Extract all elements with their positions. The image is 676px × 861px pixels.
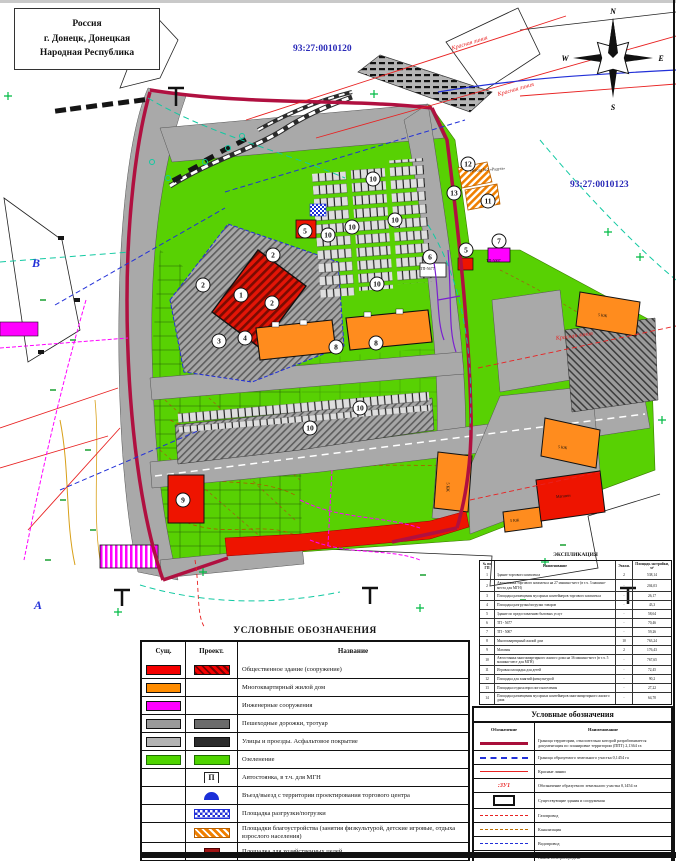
explication-cell-name: Площадка для занятий физкультурой xyxy=(494,675,615,683)
explication-rows: 1Здание торгового комплекса2538,142Автос… xyxy=(480,571,671,703)
explication-cell-name: Площадка отдыха взрослого населения xyxy=(494,684,615,692)
legend-right-symbol xyxy=(474,809,534,822)
explication-cell-area: 176,43 xyxy=(632,646,671,654)
explication-cell-num: 9 xyxy=(480,646,494,654)
legend-right-title: Условные обозначения xyxy=(474,708,671,722)
title-line-2: г. Донецк, Донецкая xyxy=(15,32,159,47)
green-swatch xyxy=(146,755,181,765)
legend-swatch-proj xyxy=(185,715,237,732)
legend-right-name: Граница территории, относительно которой… xyxy=(534,736,671,750)
explication-cell-floors: 2 xyxy=(615,571,632,579)
explication-cell-floors: 2 xyxy=(615,646,632,654)
legend-left-row: Общественное здание (сооружение) xyxy=(142,661,468,678)
legend-right-symbol xyxy=(474,793,534,808)
legend-right-row: :ЗУ1Обозначение образуемого земельного у… xyxy=(474,778,671,792)
green-swatch xyxy=(194,755,230,765)
legend-left-table: Сущ. Проект. Название Общественное здани… xyxy=(140,640,470,861)
legend-left-row: Пешеходные дорожки, тротуар xyxy=(142,714,468,732)
orangehatch-swatch xyxy=(194,828,230,838)
explication-cell-floors: - xyxy=(615,655,632,665)
compass-w: W xyxy=(561,54,569,63)
legend-right-row: Граница образуемого земельного участка 0… xyxy=(474,750,671,764)
explication-cell-area: 72,45 xyxy=(632,666,671,674)
explication-cell-area: 70,46 xyxy=(632,619,671,627)
explication-cell-area: 90,2 xyxy=(632,675,671,683)
compass-e: E xyxy=(657,54,663,63)
explication-cell-floors: - xyxy=(615,580,632,590)
legend-left-panel: УСЛОВНЫЕ ОБОЗНАЧЕНИЯ Сущ. Проект. Назван… xyxy=(140,626,470,861)
legend-right-table: Условные обозначения Обозначение Наимено… xyxy=(472,706,673,861)
gray-swatch xyxy=(146,719,181,729)
map-canvas: N W E S xyxy=(0,0,676,630)
explication-col-area: Площадь застройки, м² xyxy=(632,561,671,571)
legend-swatch-proj xyxy=(185,661,237,678)
legend-right-symbol xyxy=(474,765,534,778)
explication-cell-num: 4 xyxy=(480,601,494,609)
legend-row-name: Автостоянка, в т.ч. для МГН xyxy=(237,769,468,786)
explication-cell-area: 59,26 xyxy=(632,628,671,636)
legend-swatch-exist xyxy=(142,733,185,750)
explication-cell-num: 12 xyxy=(480,675,494,683)
explication-cell-name: Игровая площадка для детей xyxy=(494,666,615,674)
ppt-line-symbol xyxy=(480,742,528,745)
legend-row-name: Общественное здание (сооружение) xyxy=(237,661,468,678)
explication-row: 6ТП - 5677-70,46 xyxy=(480,618,671,627)
legend-swatch-exist xyxy=(142,751,185,768)
legend-left-row: Озеленение xyxy=(142,750,468,768)
legend-left-row: Улицы и проезды. Асфальтовое покрытие xyxy=(142,732,468,750)
frame-right-edge xyxy=(673,0,675,861)
explication-cell-area: 538,14 xyxy=(632,571,671,579)
legend-right-row: Граница территории, относительно которой… xyxy=(474,736,671,750)
explication-cell-num: 13 xyxy=(480,684,494,692)
legend-right-row: Канализация xyxy=(474,822,671,836)
red-swatch xyxy=(146,665,181,675)
legend-right-symbol: :ЗУ1 xyxy=(474,779,534,792)
legend-right-row: Красные линии xyxy=(474,764,671,778)
legend-row-name: Площадки благоустройства (занятия физкул… xyxy=(237,823,468,842)
legend-right-name: Обозначение образуемого земельного участ… xyxy=(534,779,671,792)
legend-right-name: Водопровод xyxy=(534,837,671,850)
explication-cell-area: 763,24 xyxy=(632,637,671,645)
explication-row: 11Игровая площадка для детей-72,45 xyxy=(480,665,671,674)
legend-right-symbol xyxy=(474,751,534,764)
legend-swatch-proj: П xyxy=(185,769,237,786)
compass-n: N xyxy=(609,7,617,16)
engineering-small xyxy=(0,322,38,336)
legend-swatch-exist xyxy=(142,823,185,842)
legend-swatch-proj xyxy=(185,823,237,842)
legend-col-proj: Проект. xyxy=(185,642,237,661)
legend-col-exist: Сущ. xyxy=(142,642,185,661)
explication-cell-name: Площадка размещения мусорных контейнеров… xyxy=(494,592,615,600)
legend-left-row: ПАвтостоянка, в т.ч. для МГН xyxy=(142,768,468,786)
explication-row: 14Площадка размещения мусорных контейнер… xyxy=(480,692,671,703)
magenta-swatch xyxy=(146,701,181,711)
explication-row: 13Площадка отдыха взрослого населения-27… xyxy=(480,683,671,692)
legend-swatch-proj xyxy=(185,751,237,768)
explication-cell-name: Многоквартирный жилой дом xyxy=(494,637,615,645)
legend-swatch-proj xyxy=(185,679,237,696)
legend-right-name: Существующие здания и сооружения xyxy=(534,793,671,808)
explication-cell-floors: - xyxy=(615,666,632,674)
bluecheck-swatch xyxy=(194,809,230,819)
explication-row: 4Площадка разгрузки/погрузки товаров-43,… xyxy=(480,600,671,609)
legend-right-name: Граница образуемого земельного участка 0… xyxy=(534,751,671,764)
explication-title: ЭКСПЛИКАЦИЯ xyxy=(479,552,672,558)
orange-swatch xyxy=(146,683,181,693)
explication-cell-floors: - xyxy=(615,684,632,692)
sewer-symbol xyxy=(480,829,528,830)
explication-cell-num: 3 xyxy=(480,592,494,600)
legend-right-row: Существующие здания и сооружения xyxy=(474,792,671,808)
explication-cell-num: 2 xyxy=(480,580,494,590)
explication-cell-num: 11 xyxy=(480,666,494,674)
loading-area xyxy=(310,204,326,216)
legend-swatch-exist xyxy=(142,787,185,804)
parking-swatch: П xyxy=(204,772,218,783)
playground-b xyxy=(465,184,500,210)
plan-sheet: N W E S Красная линияКрасная линияКрасна… xyxy=(0,0,676,861)
explication-cell-floors: - xyxy=(615,601,632,609)
explication-row: 2Автостоянка торгового комплекса на 27 м… xyxy=(480,579,671,590)
explication-cell-name: Здание торгового комплекса xyxy=(494,571,615,579)
explication-cell-name: ТП - 5677 xyxy=(494,619,615,627)
legend-row-name: Улицы и проезды. Асфальтовое покрытие xyxy=(237,733,468,750)
legend-row-name: Площадка разгрузки/погрузки xyxy=(237,805,468,822)
asphalt-swatch xyxy=(194,737,230,747)
explication-col-name: Наименование xyxy=(494,561,615,571)
title-line-3: Народная Республика xyxy=(15,46,159,61)
legend-left-title: УСЛОВНЫЕ ОБОЗНАЧЕНИЯ xyxy=(140,626,470,636)
explication-row: 3Площадка размещения мусорных контейнеро… xyxy=(480,591,671,600)
darkgray-swatch xyxy=(194,719,230,729)
legend-swatch-proj xyxy=(185,805,237,822)
explication-col-floors: Этажн. xyxy=(615,561,632,571)
service-building xyxy=(296,220,316,238)
entry-swatch xyxy=(204,792,219,800)
legend-right-rows: Граница территории, относительно которой… xyxy=(474,736,671,861)
legend-right-symbol xyxy=(474,736,534,750)
legend-col-name: Название xyxy=(237,642,468,661)
explication-cell-floors: - xyxy=(615,610,632,618)
compass-rose: N W E S xyxy=(561,7,663,112)
tp-building-1 xyxy=(420,263,446,277)
explication-cell-name: Здание по предоставлению бытовых услуг xyxy=(494,610,615,618)
zu-label-symbol: :ЗУ1 xyxy=(498,783,510,789)
explication-cell-num: 14 xyxy=(480,693,494,703)
legend-swatch-proj xyxy=(185,697,237,714)
explication-cell-name: Площадка разгрузки/погрузки товаров xyxy=(494,601,615,609)
explication-row: 5Здание по предоставлению бытовых услуг-… xyxy=(480,609,671,618)
legend-right-header: Обозначение Наименование xyxy=(474,722,671,736)
compass-s: S xyxy=(611,103,616,112)
explication-header: № по ГП Наименование Этажн. Площадь заст… xyxy=(480,561,671,571)
exist-shop-building xyxy=(536,471,605,521)
legend-left-header: Сущ. Проект. Название xyxy=(142,642,468,661)
explication-col-num: № по ГП xyxy=(480,561,494,571)
legend-right-panel: Условные обозначения Обозначение Наимено… xyxy=(472,706,673,861)
legend-left-rows: Общественное здание (сооружение)Многоква… xyxy=(142,661,468,860)
shop-building xyxy=(168,475,204,523)
legend-row-name: Пешеходные дорожки, тротуар xyxy=(237,715,468,732)
explication-row: 7ТП - 5007-59,26 xyxy=(480,627,671,636)
frame-bottom-edge xyxy=(140,852,676,858)
explication-cell-floors: - xyxy=(615,693,632,703)
tp-building-2 xyxy=(488,248,510,262)
legend-row-name: Въезд/выезд с территории проектирования … xyxy=(237,787,468,804)
water-symbol xyxy=(480,843,528,844)
legend-swatch-proj xyxy=(185,787,237,804)
title-line-1: Россия xyxy=(15,17,159,32)
explication-cell-num: 7 xyxy=(480,628,494,636)
legend-right-symbol xyxy=(474,837,534,850)
explication-cell-floors: 10 xyxy=(615,637,632,645)
explication-cell-name: Площадка размещения мусорных контейнеров… xyxy=(494,693,615,703)
legend-swatch-exist xyxy=(142,679,185,696)
legend-swatch-exist xyxy=(142,697,185,714)
legend-swatch-exist xyxy=(142,805,185,822)
legend-left-row: Инженерные сооружения xyxy=(142,696,468,714)
explication-cell-floors: - xyxy=(615,628,632,636)
parcel-line-symbol xyxy=(480,757,528,759)
explication-cell-name: Магазин xyxy=(494,646,615,654)
explication-panel: ЭКСПЛИКАЦИЯ № по ГП Наименование Этажн. … xyxy=(479,552,672,705)
explication-cell-floors: - xyxy=(615,619,632,627)
legend-left-row: Площадки благоустройства (занятия физкул… xyxy=(142,822,468,842)
legend-swatch-exist xyxy=(142,661,185,678)
playground-a xyxy=(458,162,492,188)
explication-cell-area: 26,17 xyxy=(632,592,671,600)
explication-row: 12Площадка для занятий физкультурой-90,2 xyxy=(480,674,671,683)
explication-table: № по ГП Наименование Этажн. Площадь заст… xyxy=(479,560,672,705)
legend-left-row: Площадка разгрузки/погрузки xyxy=(142,804,468,822)
engineering-platform xyxy=(100,545,158,568)
legend-right-row: Газопровод xyxy=(474,808,671,822)
legend-right-row: Водопровод xyxy=(474,836,671,850)
gas-symbol xyxy=(480,815,528,816)
exist-apartment-4 xyxy=(503,507,542,532)
explication-cell-name: Автостоянка торгового комплекса на 27 ма… xyxy=(494,580,615,590)
explication-cell-num: 10 xyxy=(480,655,494,665)
legend-right-name: Канализация xyxy=(534,823,671,836)
exist-bld-symbol xyxy=(493,795,515,806)
legend-right-name: Красные линии xyxy=(534,765,671,778)
legend-row-name: Многоквартирный жилой дом xyxy=(237,679,468,696)
explication-cell-area: 767,65 xyxy=(632,655,671,665)
legend-swatch-proj xyxy=(185,733,237,750)
explication-cell-name: ТП - 5007 xyxy=(494,628,615,636)
legend-right-col-symbol: Обозначение xyxy=(474,723,534,736)
legend-right-symbol xyxy=(474,823,534,836)
lightgray-swatch xyxy=(146,737,181,747)
explication-cell-area: 64,70 xyxy=(632,693,671,703)
legend-row-name: Инженерные сооружения xyxy=(237,697,468,714)
legend-left-row: Многоквартирный жилой дом xyxy=(142,678,468,696)
parking-stalls-top xyxy=(311,158,432,297)
explication-cell-area: 43,3 xyxy=(632,601,671,609)
explication-row: 8Многоквартирный жилой дом10763,24 xyxy=(480,636,671,645)
explication-cell-area: 204,03 xyxy=(632,580,671,590)
explication-cell-num: 1 xyxy=(480,571,494,579)
legend-right-name: Газопровод xyxy=(534,809,671,822)
legend-row-name: Озеленение xyxy=(237,751,468,768)
legend-left-row: Въезд/выезд с территории проектирования … xyxy=(142,786,468,804)
explication-cell-num: 8 xyxy=(480,637,494,645)
explication-cell-area: 58,64 xyxy=(632,610,671,618)
explication-row: 1Здание торгового комплекса2538,14 xyxy=(480,571,671,579)
red-hatch-swatch xyxy=(194,665,230,675)
explication-cell-area: 27,22 xyxy=(632,684,671,692)
explication-cell-num: 6 xyxy=(480,619,494,627)
explication-cell-floors: - xyxy=(615,592,632,600)
explication-cell-num: 5 xyxy=(480,610,494,618)
explication-cell-name: Автостоянка многоквартирного жилого дома… xyxy=(494,655,615,665)
explication-row: 10Автостоянка многоквартирного жилого до… xyxy=(480,654,671,665)
legend-right-col-name: Наименование xyxy=(534,723,671,736)
legend-swatch-exist xyxy=(142,715,185,732)
explication-row: 9Магазин2176,43 xyxy=(480,645,671,654)
explication-cell-floors: - xyxy=(615,675,632,683)
title-box: Россия г. Донецк, Донецкая Народная Респ… xyxy=(14,8,160,70)
legend-swatch-exist xyxy=(142,769,185,786)
red-line-symbol xyxy=(480,771,528,773)
